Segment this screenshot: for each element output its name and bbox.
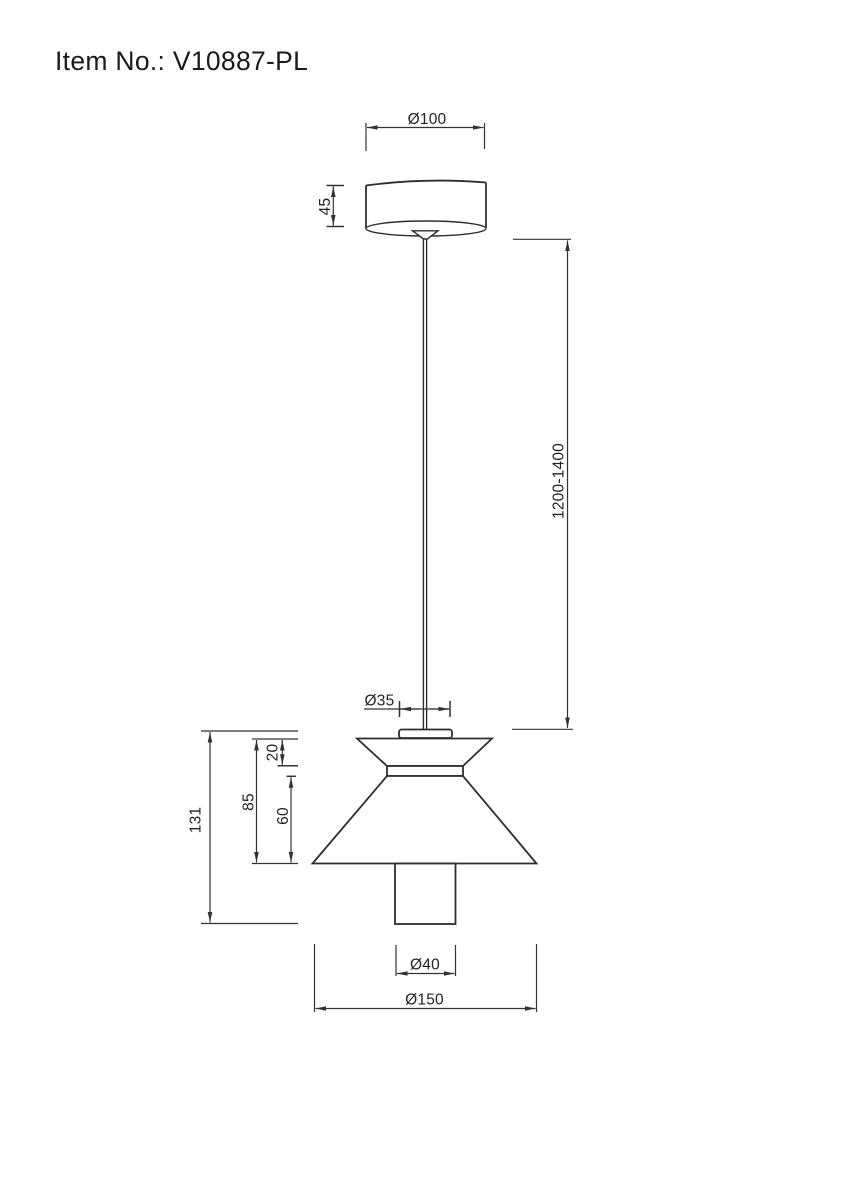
- bottom-tube: [395, 864, 456, 925]
- dim-suspension-length: 1200-1400: [512, 239, 573, 729]
- dim-tube-diameter: Ø40: [396, 945, 456, 976]
- lamp-figure: [313, 181, 537, 924]
- dim-fixture-height-label: 131: [188, 807, 205, 833]
- suspension-cord: [423, 236, 426, 730]
- dim-holder-diameter: Ø35: [364, 693, 450, 718]
- dim-upper-cone-height: 20: [265, 740, 299, 766]
- ceiling-canopy: [366, 181, 486, 236]
- pendant-lamp-drawing: Ø100 45 1200-1400 Ø35: [0, 0, 848, 1200]
- dimensions: Ø100 45 1200-1400 Ø35: [188, 111, 574, 1012]
- dim-holder-diameter-label: Ø35: [365, 693, 395, 710]
- dim-suspension-length-label: 1200-1400: [551, 443, 568, 519]
- dim-shade-diameter: Ø150: [315, 944, 537, 1012]
- dim-lower-cone-height-label: 60: [275, 807, 292, 825]
- dim-upper-cone-height-label: 20: [265, 744, 282, 762]
- upper-shade-cone: [357, 739, 492, 767]
- dim-canopy-height-label: 45: [317, 198, 334, 216]
- middle-band: [387, 766, 463, 776]
- dim-shade-diameter-label: Ø150: [405, 992, 444, 1009]
- dim-lower-cone-height: 60: [275, 776, 296, 862]
- socket-cap: [399, 730, 452, 739]
- drawing-sheet: Item No.: V10887-PL: [0, 0, 848, 1200]
- lamp-body: [313, 730, 537, 925]
- dim-canopy-diameter: Ø100: [366, 111, 485, 151]
- dim-tube-diameter-label: Ø40: [410, 957, 440, 974]
- lower-shade-cone: [313, 776, 537, 864]
- cord-grip-cone: [413, 231, 439, 239]
- dim-canopy-height: 45: [317, 186, 344, 227]
- dim-body-height-label: 85: [241, 793, 258, 811]
- dim-canopy-diameter-label: Ø100: [408, 111, 447, 128]
- canopy-top-edge: [366, 181, 486, 186]
